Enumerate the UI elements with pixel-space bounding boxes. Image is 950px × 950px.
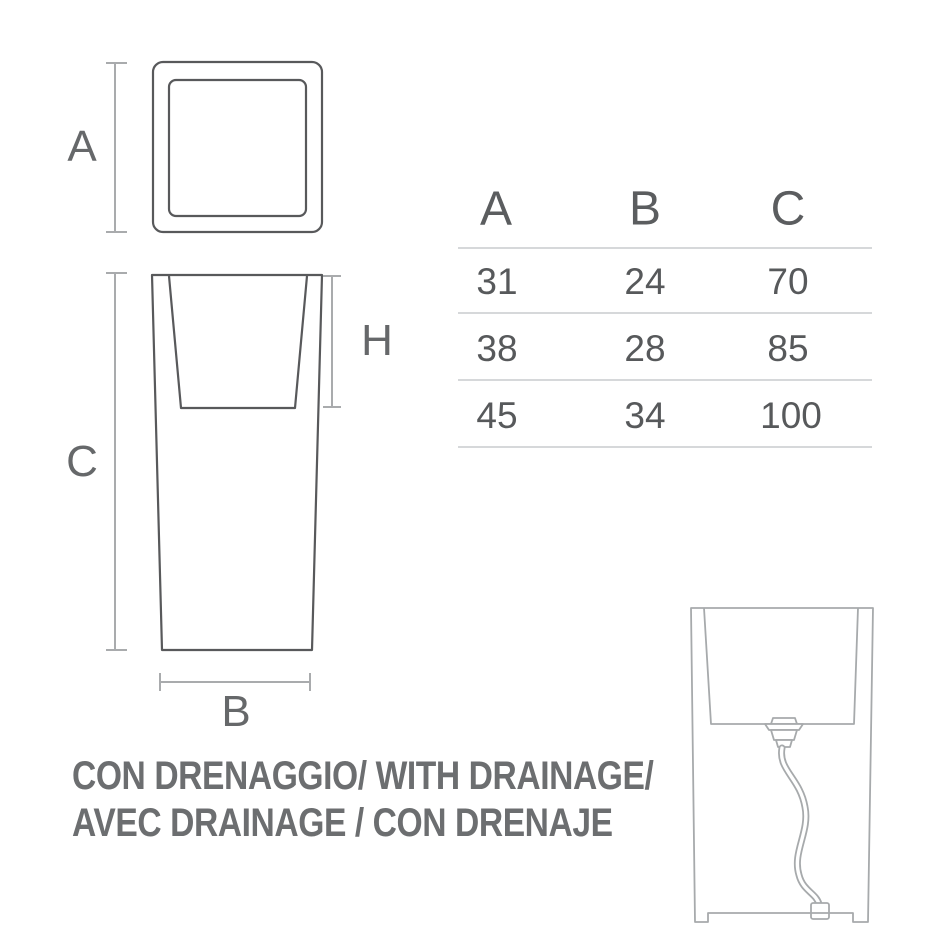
dim-label-h: H xyxy=(361,316,393,366)
table-cell: 70 xyxy=(767,261,808,303)
dim-label-a: A xyxy=(67,122,96,172)
dimension-sheet: A C H B A B C 31 24 70 38 28 85 45 34 10… xyxy=(0,0,950,950)
table-cell: 45 xyxy=(476,395,517,437)
table-cell: 85 xyxy=(767,328,808,370)
table-cell: 34 xyxy=(624,395,665,437)
front-view-inner-cavity xyxy=(169,276,307,408)
dimension-line-c xyxy=(106,273,127,650)
dimension-line-h xyxy=(323,276,341,407)
drain-fitting xyxy=(765,718,803,747)
front-view-drawing xyxy=(152,275,322,650)
table-cell: 24 xyxy=(624,261,665,303)
dim-label-b: B xyxy=(221,687,250,737)
table-header-a: A xyxy=(480,182,512,237)
table-header-b: B xyxy=(629,182,661,237)
table-cell: 38 xyxy=(476,328,517,370)
drainage-caption-line1: CON DRENAGGIO/ WITH DRAINAGE/ xyxy=(72,756,653,796)
tube-end-connector xyxy=(811,903,829,919)
top-view-outer-rim xyxy=(153,62,322,232)
table-cell: 31 xyxy=(476,261,517,303)
top-view-drawing xyxy=(153,62,322,232)
dimension-line-a xyxy=(106,63,127,232)
top-view-inner-rim xyxy=(169,80,306,216)
table-header-c: C xyxy=(771,182,806,237)
table-cell: 28 xyxy=(624,328,665,370)
dim-label-c: C xyxy=(66,437,98,487)
table-cell: 100 xyxy=(760,395,822,437)
front-view-body xyxy=(152,275,322,650)
drainage-view-drawing xyxy=(691,608,873,922)
drainage-basin xyxy=(704,608,858,724)
drainage-caption-line2: AVEC DRAINAGE / CON DRENAJE xyxy=(72,803,613,843)
